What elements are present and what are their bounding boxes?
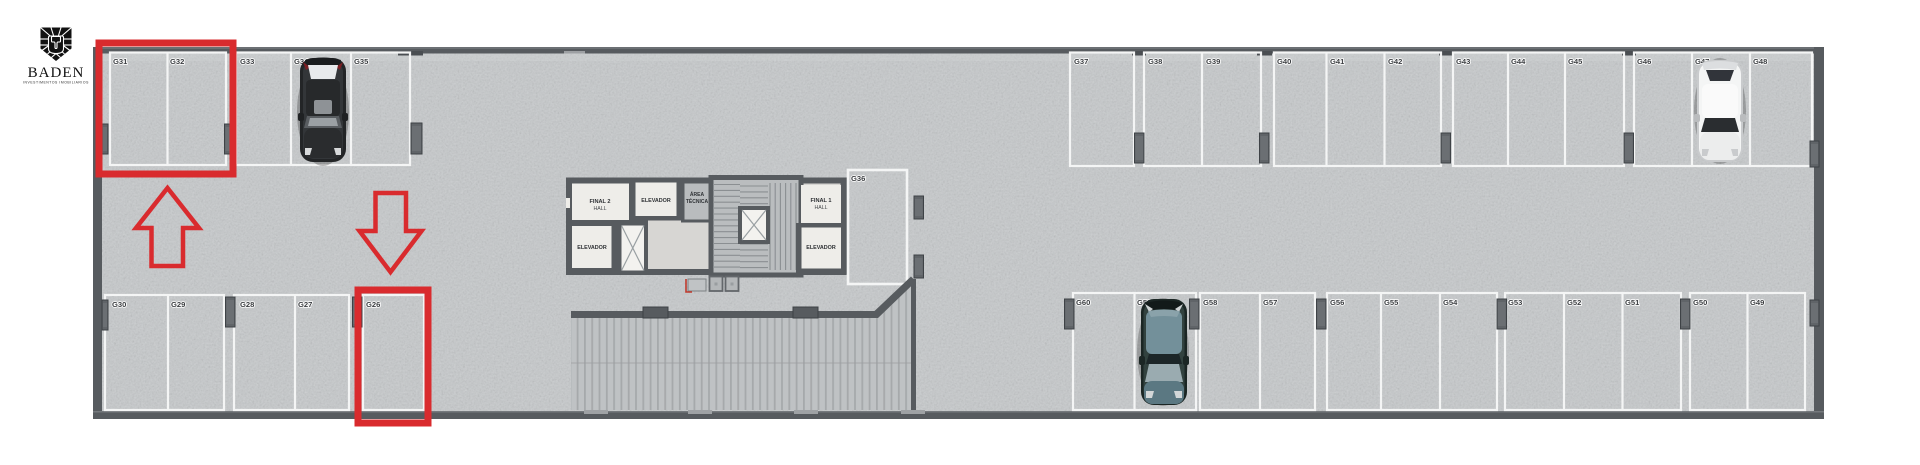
svg-text:G30: G30 <box>112 300 126 309</box>
svg-text:G32: G32 <box>170 57 184 66</box>
svg-text:G27: G27 <box>298 300 312 309</box>
svg-text:G50: G50 <box>1693 298 1707 307</box>
svg-text:BADEN: BADEN <box>28 65 85 81</box>
svg-text:G40: G40 <box>1277 57 1291 66</box>
svg-text:G28: G28 <box>240 300 254 309</box>
svg-text:G45: G45 <box>1568 57 1583 66</box>
svg-text:G56: G56 <box>1330 298 1344 307</box>
svg-text:FINAL 2: FINAL 2 <box>589 199 610 205</box>
svg-text:G55: G55 <box>1384 298 1399 307</box>
svg-text:G38: G38 <box>1148 57 1162 66</box>
svg-text:HALL: HALL <box>815 205 828 211</box>
svg-text:G57: G57 <box>1263 298 1277 307</box>
svg-text:G43: G43 <box>1456 57 1470 66</box>
svg-text:HALL: HALL <box>594 206 607 212</box>
svg-text:G29: G29 <box>171 300 185 309</box>
svg-text:G52: G52 <box>1567 298 1581 307</box>
svg-text:ELEVADOR: ELEVADOR <box>641 198 671 204</box>
svg-text:ELEVADOR: ELEVADOR <box>806 245 836 251</box>
svg-text:ÁREA: ÁREA <box>690 191 705 198</box>
svg-text:G48: G48 <box>1753 57 1767 66</box>
svg-text:G37: G37 <box>1074 57 1088 66</box>
svg-text:G51: G51 <box>1625 298 1640 307</box>
svg-text:G26: G26 <box>366 300 380 309</box>
svg-text:G35: G35 <box>354 57 369 66</box>
svg-text:G49: G49 <box>1750 298 1764 307</box>
svg-text:G42: G42 <box>1388 57 1402 66</box>
svg-text:G54: G54 <box>1443 298 1458 307</box>
svg-text:G36: G36 <box>851 174 865 183</box>
svg-text:G60: G60 <box>1076 298 1090 307</box>
svg-text:G33: G33 <box>240 57 254 66</box>
svg-text:G46: G46 <box>1637 57 1651 66</box>
svg-text:G41: G41 <box>1330 57 1345 66</box>
svg-text:G39: G39 <box>1206 57 1220 66</box>
svg-text:FINAL 1: FINAL 1 <box>810 198 831 204</box>
svg-text:G44: G44 <box>1511 57 1526 66</box>
svg-text:TÉCNICA: TÉCNICA <box>686 197 709 205</box>
svg-text:ELEVADOR: ELEVADOR <box>577 245 607 251</box>
svg-text:G58: G58 <box>1203 298 1217 307</box>
svg-text:G31: G31 <box>113 57 128 66</box>
svg-text:G53: G53 <box>1508 298 1522 307</box>
svg-text:INVESTIMENTOS IMOBILIARIOS: INVESTIMENTOS IMOBILIARIOS <box>23 81 89 85</box>
